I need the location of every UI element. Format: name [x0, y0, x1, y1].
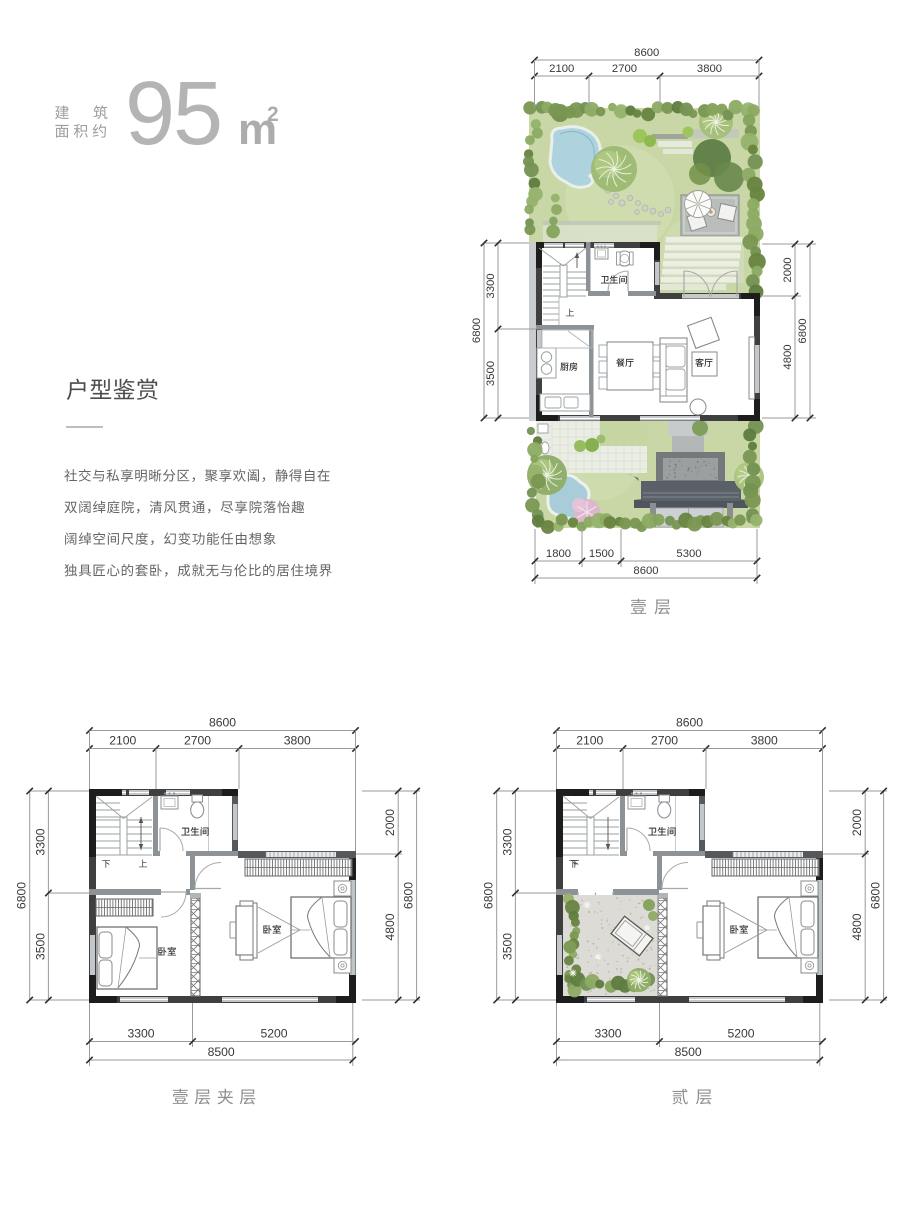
svg-text:2000: 2000	[383, 809, 397, 836]
svg-text:5300: 5300	[676, 548, 701, 560]
svg-text:1800: 1800	[546, 548, 571, 560]
svg-text:8500: 8500	[208, 1045, 235, 1059]
svg-text:2: 2	[267, 103, 279, 126]
svg-text:2700: 2700	[612, 63, 637, 75]
svg-text:6800: 6800	[471, 318, 483, 343]
svg-text:2700: 2700	[184, 734, 211, 748]
svg-text:3300: 3300	[33, 828, 47, 855]
svg-text:6800: 6800	[797, 318, 809, 343]
svg-text:3300: 3300	[485, 273, 497, 298]
svg-text:4800: 4800	[383, 913, 397, 940]
svg-text:1500: 1500	[589, 548, 614, 560]
svg-text:3500: 3500	[485, 361, 497, 386]
svg-text:3800: 3800	[697, 63, 722, 75]
svg-text:2100: 2100	[109, 734, 136, 748]
svg-text:3500: 3500	[33, 933, 47, 960]
svg-text:3800: 3800	[284, 734, 311, 748]
svg-text:5200: 5200	[260, 1027, 287, 1041]
svg-text:6800: 6800	[15, 882, 29, 909]
svg-text:95: 95	[125, 64, 221, 164]
svg-text:2000: 2000	[782, 257, 794, 282]
svg-text:8600: 8600	[633, 565, 658, 577]
svg-text:6800: 6800	[402, 882, 416, 909]
svg-text:4800: 4800	[782, 344, 794, 369]
svg-text:3300: 3300	[127, 1027, 154, 1041]
svg-text:8600: 8600	[209, 716, 236, 730]
svg-text:2100: 2100	[549, 63, 574, 75]
svg-text:8600: 8600	[634, 47, 659, 59]
